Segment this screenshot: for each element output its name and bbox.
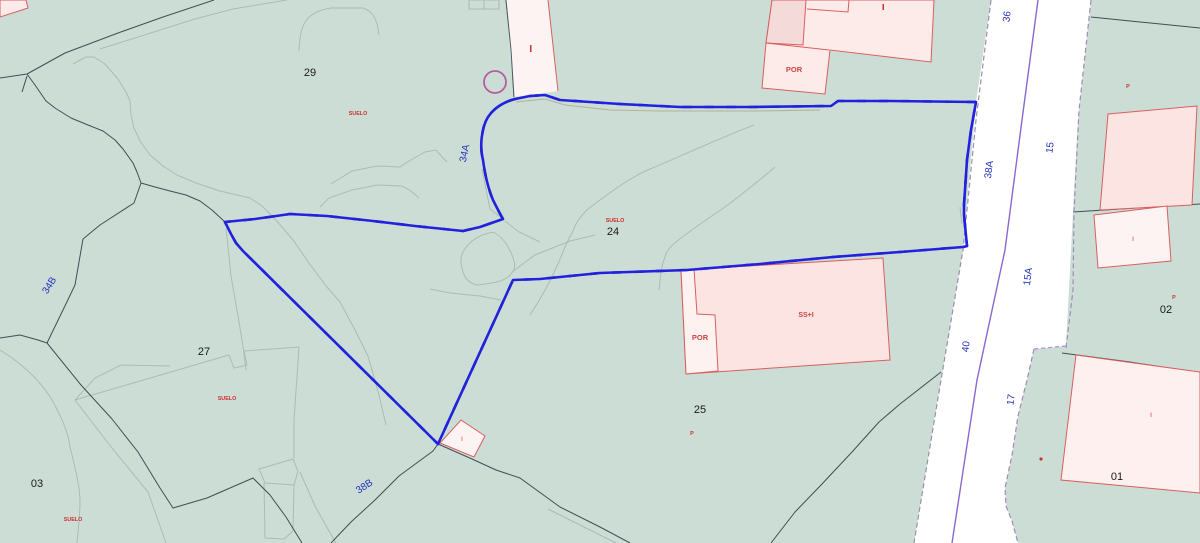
svg-text:29: 29 <box>304 67 316 79</box>
svg-text:SUELO: SUELO <box>218 396 237 402</box>
svg-text:02: 02 <box>1160 304 1172 316</box>
svg-text:P: P <box>1126 84 1130 90</box>
svg-text:24: 24 <box>607 226 619 238</box>
svg-text:25: 25 <box>694 404 706 416</box>
svg-text:POR: POR <box>786 65 803 74</box>
svg-text:POR: POR <box>692 333 709 342</box>
svg-text:38A: 38A <box>983 160 996 179</box>
svg-text:SUELO: SUELO <box>349 111 368 117</box>
svg-text:I: I <box>1150 412 1152 419</box>
svg-text:17: 17 <box>1005 393 1017 406</box>
svg-text:SUELO: SUELO <box>64 517 83 523</box>
svg-text:SUELO: SUELO <box>606 218 625 224</box>
svg-text:SS+I: SS+I <box>798 312 813 319</box>
svg-text:27: 27 <box>198 346 210 358</box>
svg-text:15A: 15A <box>1022 267 1035 286</box>
svg-text:15: 15 <box>1044 141 1056 154</box>
svg-text:01: 01 <box>1111 471 1123 483</box>
svg-text:36: 36 <box>1001 10 1013 23</box>
svg-text:P: P <box>690 431 694 437</box>
svg-text:03: 03 <box>31 478 43 490</box>
svg-text:P: P <box>1172 295 1176 301</box>
svg-text:I: I <box>1132 236 1134 243</box>
svg-text:40: 40 <box>960 340 972 353</box>
